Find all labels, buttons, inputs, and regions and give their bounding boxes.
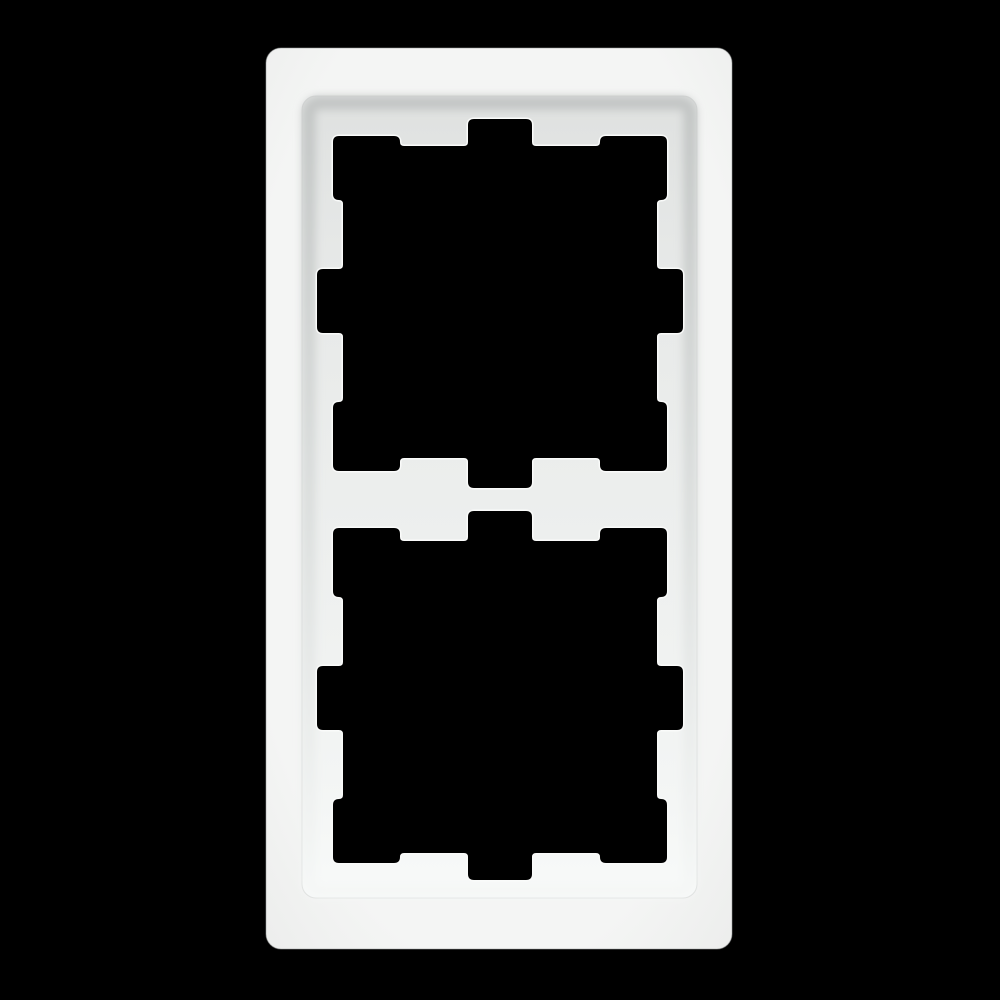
lower-opening-cutout [318,512,682,879]
upper-opening-cutout [318,120,682,487]
switch-frame-photo [0,0,1000,1000]
product-photo [0,0,1000,1000]
